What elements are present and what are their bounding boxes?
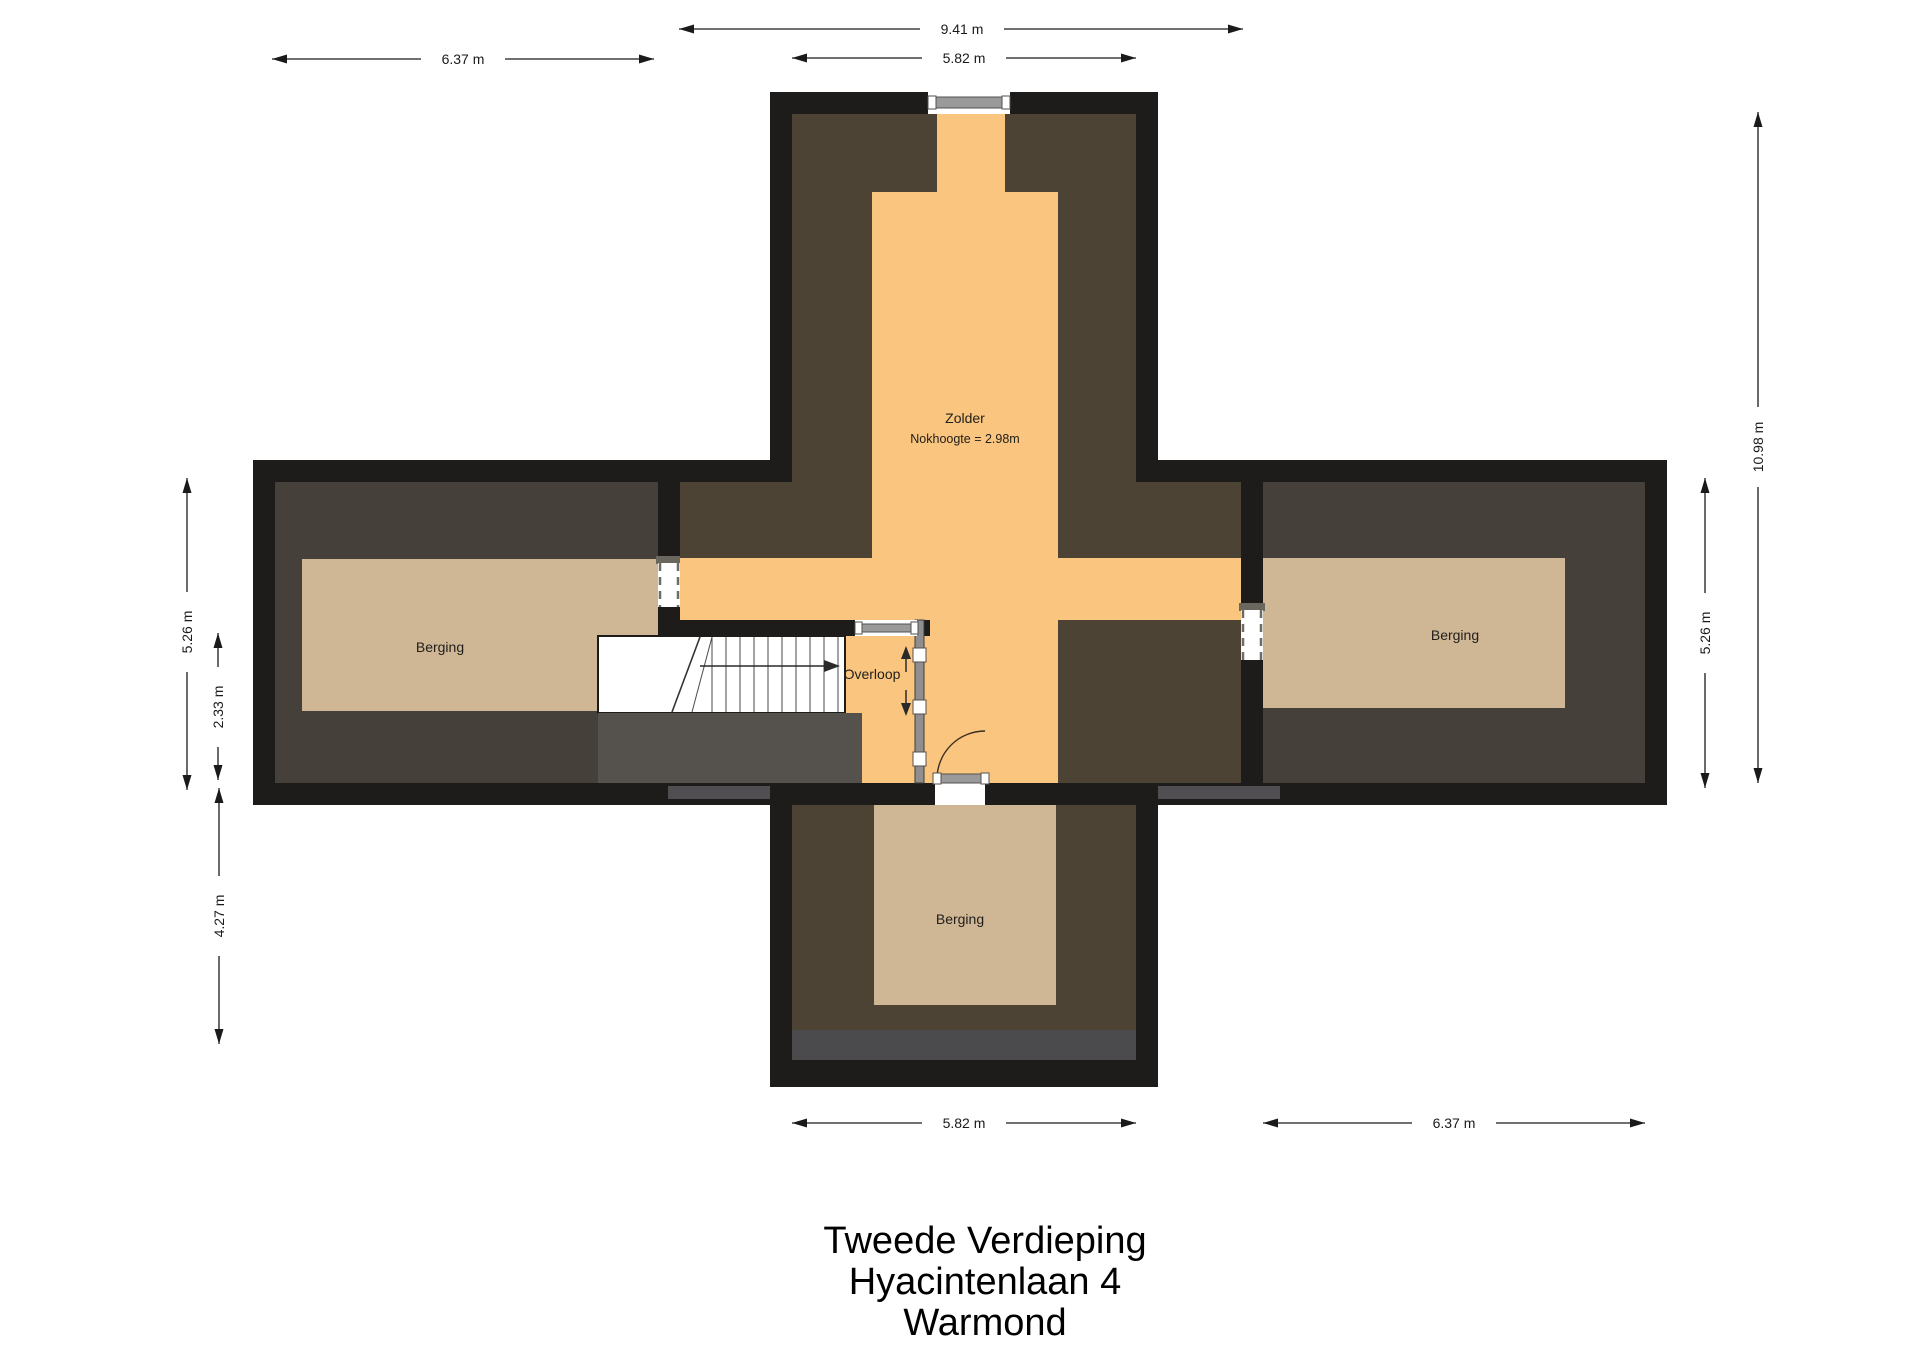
dim-stair-zone-height: 2.33 m	[210, 633, 226, 780]
window-stair-wall	[855, 620, 918, 636]
dim-left-wing-height: 5.26 m	[179, 478, 195, 790]
dim-right-wing-width: 6.37 m	[1263, 1115, 1645, 1131]
landing-partition	[913, 620, 926, 783]
berging-left-label: Berging	[416, 639, 464, 655]
svg-text:5.26 m: 5.26 m	[179, 611, 195, 654]
floor-plan-drawing: Zolder Nokhoogte = 2.98m Overloop Bergin…	[0, 0, 1920, 1358]
dim-core-outer-width: 9.41 m	[679, 21, 1243, 37]
window-left-junction	[656, 556, 680, 607]
dim-total-height: 10.98 m	[1750, 112, 1766, 783]
overloop-label: Overloop	[844, 666, 901, 682]
right-wall-strip	[1158, 786, 1280, 799]
stairwell-floor	[598, 636, 845, 713]
understair-shadow	[598, 713, 862, 783]
berging-right-label: Berging	[1431, 627, 1479, 643]
svg-text:6.37 m: 6.37 m	[1433, 1115, 1476, 1131]
svg-text:5.26 m: 5.26 m	[1697, 612, 1713, 655]
dim-top-section-width: 5.82 m	[792, 50, 1136, 66]
title-line-floor: Tweede Verdieping	[823, 1220, 1146, 1262]
window-top	[928, 92, 1010, 114]
dim-left-wing-width: 6.37 m	[272, 51, 654, 67]
svg-text:2.33 m: 2.33 m	[210, 686, 226, 729]
svg-text:10.98 m: 10.98 m	[1750, 422, 1766, 473]
title-line-city: Warmond	[903, 1302, 1066, 1344]
zolder-sublabel: Nokhoogte = 2.98m	[910, 432, 1019, 446]
zolder-label: Zolder	[945, 410, 985, 426]
bottom-roof-strip	[792, 1030, 1136, 1060]
svg-text:9.41 m: 9.41 m	[941, 21, 984, 37]
svg-text:5.82 m: 5.82 m	[943, 1115, 986, 1131]
berging-right-floor	[1263, 558, 1565, 708]
plan-title: Tweede Verdieping Hyacintenlaan 4 Warmon…	[823, 1220, 1146, 1344]
title-line-street: Hyacintenlaan 4	[849, 1261, 1122, 1303]
svg-text:6.37 m: 6.37 m	[442, 51, 485, 67]
building-footprint: Zolder Nokhoogte = 2.98m Overloop Bergin…	[253, 92, 1667, 1087]
dim-right-wing-height: 5.26 m	[1697, 478, 1713, 788]
floor-plan-page: Zolder Nokhoogte = 2.98m Overloop Bergin…	[0, 0, 1920, 1358]
window-right-junction	[1239, 603, 1265, 660]
dim-bottom-section-width: 5.82 m	[792, 1115, 1136, 1131]
berging-bottom-label: Berging	[936, 911, 984, 927]
berging-bottom-floor	[874, 805, 1056, 1005]
staircase	[598, 636, 845, 713]
svg-text:5.82 m: 5.82 m	[943, 50, 986, 66]
dim-bottom-section-height: 4.27 m	[211, 788, 227, 1044]
left-wall-strip	[668, 786, 770, 799]
svg-text:4.27 m: 4.27 m	[211, 895, 227, 938]
